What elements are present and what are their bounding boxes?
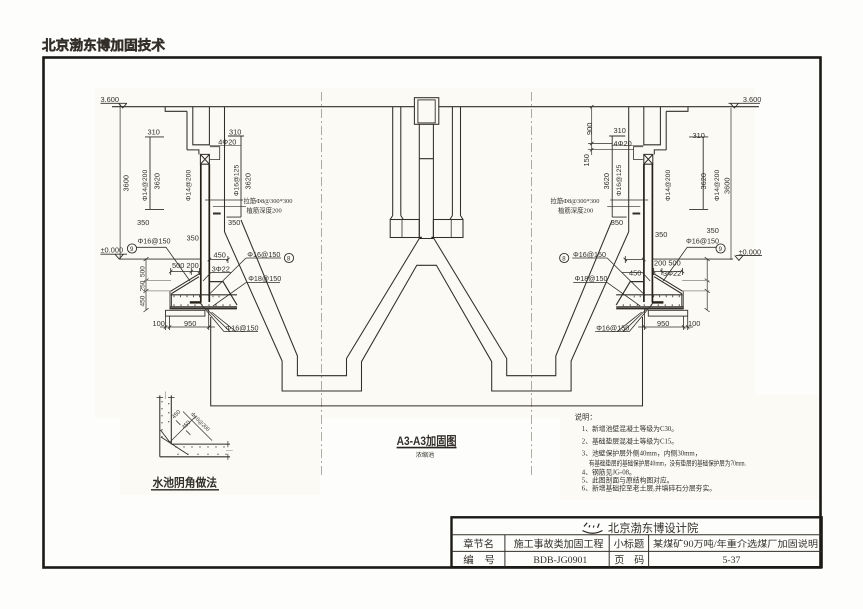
svg-text:±0.000: ±0.000 xyxy=(739,247,762,256)
svg-text:说明：: 说明： xyxy=(575,413,597,422)
svg-text:350: 350 xyxy=(707,226,719,235)
svg-text:1、新增池壁混凝土等级为C30。: 1、新增池壁混凝土等级为C30。 xyxy=(582,424,678,433)
svg-text:BDB-JG0901: BDB-JG0901 xyxy=(533,555,587,566)
svg-text:100: 100 xyxy=(688,319,700,328)
svg-text:Φ16@150: Φ16@150 xyxy=(226,324,259,333)
svg-text:Φ14@200: Φ14@200 xyxy=(186,170,193,201)
svg-text:拉筋Φ8@300*300: 拉筋Φ8@300*300 xyxy=(244,196,293,205)
svg-text:100: 100 xyxy=(153,319,165,328)
svg-text:3600: 3600 xyxy=(723,178,732,194)
svg-text:900: 900 xyxy=(585,123,594,135)
svg-text:200 500: 200 500 xyxy=(654,259,681,268)
svg-text:Φ16@125: Φ16@125 xyxy=(234,165,241,196)
svg-text:3620: 3620 xyxy=(244,173,253,189)
svg-text:北京渤东博设计院: 北京渤东博设计院 xyxy=(608,521,698,535)
svg-text:某煤矿90万吨/年重介选煤厂加固说明: 某煤矿90万吨/年重介选煤厂加固说明 xyxy=(653,538,818,549)
svg-text:3.600: 3.600 xyxy=(743,95,762,104)
svg-text:3Φ22: 3Φ22 xyxy=(663,269,681,278)
svg-text:3620: 3620 xyxy=(699,173,708,189)
svg-text:北京渤东博加固技术: 北京渤东博加固技术 xyxy=(42,37,165,53)
svg-text:编 号: 编 号 xyxy=(463,554,495,567)
svg-text:310: 310 xyxy=(229,128,241,137)
svg-text:310: 310 xyxy=(148,128,160,137)
svg-text:310: 310 xyxy=(614,126,626,135)
svg-text:3.600: 3.600 xyxy=(101,95,120,104)
svg-text:Φ16@150: Φ16@150 xyxy=(573,250,606,259)
svg-text:3、池壁保护层外侧40mm，内侧30mm，: 3、池壁保护层外侧40mm，内侧30mm， xyxy=(582,449,702,458)
svg-text:950: 950 xyxy=(657,319,669,328)
svg-text:350: 350 xyxy=(187,233,199,242)
svg-text:Φ16@125: Φ16@125 xyxy=(616,165,623,196)
svg-text:6、新增基础挖至老土层,并填碎石分层夯实。: 6、新增基础挖至老土层,并填碎石分层夯实。 xyxy=(582,483,716,492)
svg-text:Φ14@200: Φ14@200 xyxy=(714,170,721,201)
svg-text:A3-A3加固图: A3-A3加固图 xyxy=(397,433,457,448)
svg-text:350: 350 xyxy=(137,218,149,227)
svg-text:4Φ20: 4Φ20 xyxy=(614,139,632,148)
svg-text:施工事故类加固工程: 施工事故类加固工程 xyxy=(514,538,604,551)
svg-text:350: 350 xyxy=(611,218,623,227)
svg-text:±0.000: ±0.000 xyxy=(101,246,124,255)
svg-text:350: 350 xyxy=(228,218,240,227)
svg-text:3620: 3620 xyxy=(602,173,611,189)
svg-text:Φ16@150: Φ16@150 xyxy=(138,237,171,246)
svg-text:Φ16@150: Φ16@150 xyxy=(596,324,629,333)
svg-text:4Φ20: 4Φ20 xyxy=(218,138,236,147)
svg-text:有基础垫层的基础保护层40mm，没有垫层的基础保护层为70m: 有基础垫层的基础保护层40mm，没有垫层的基础保护层为70mm. xyxy=(589,458,746,467)
svg-text:950: 950 xyxy=(184,319,196,328)
svg-text:拉筋Φ8@300*300: 拉筋Φ8@300*300 xyxy=(551,196,600,205)
svg-text:500: 500 xyxy=(140,266,147,277)
svg-text:植筋深度200: 植筋深度200 xyxy=(558,206,593,215)
svg-text:2、基础垫层混凝土等级为C15。: 2、基础垫层混凝土等级为C15。 xyxy=(582,436,678,445)
svg-text:Φ18@150: Φ18@150 xyxy=(575,274,608,283)
svg-text:Φ14@200: Φ14@200 xyxy=(142,170,149,201)
svg-text:4、钢筋见JG-08。: 4、钢筋见JG-08。 xyxy=(582,467,636,476)
svg-text:450: 450 xyxy=(214,251,226,260)
svg-text:150: 150 xyxy=(582,154,591,166)
svg-text:3600: 3600 xyxy=(122,175,131,191)
svg-text:5-37: 5-37 xyxy=(723,555,741,566)
svg-text:3620: 3620 xyxy=(153,173,162,189)
svg-text:3Φ22: 3Φ22 xyxy=(212,265,230,274)
svg-text:小标题: 小标题 xyxy=(614,539,645,551)
svg-text:页 码: 页 码 xyxy=(614,555,644,567)
svg-text:Φ14@200: Φ14@200 xyxy=(665,170,672,201)
svg-text:Φ18@150: Φ18@150 xyxy=(248,274,281,283)
svg-text:250: 250 xyxy=(140,280,147,291)
svg-text:500 200: 500 200 xyxy=(172,261,199,270)
svg-text:Φ16@150: Φ16@150 xyxy=(247,250,280,259)
svg-text:章节名: 章节名 xyxy=(463,538,494,551)
svg-text:水池阴角做法: 水池阴角做法 xyxy=(153,476,218,490)
svg-text:450: 450 xyxy=(629,268,641,277)
svg-text:310: 310 xyxy=(693,131,705,140)
svg-text:Φ16@150: Φ16@150 xyxy=(686,237,719,246)
svg-text:350: 350 xyxy=(655,230,667,239)
svg-text:450: 450 xyxy=(140,295,147,306)
svg-text:浓缩池: 浓缩池 xyxy=(416,451,435,459)
svg-text:植筋深度200: 植筋深度200 xyxy=(247,206,282,215)
svg-text:5、此图剖面与原结构图对应。: 5、此图剖面与原结构图对应。 xyxy=(582,476,674,485)
